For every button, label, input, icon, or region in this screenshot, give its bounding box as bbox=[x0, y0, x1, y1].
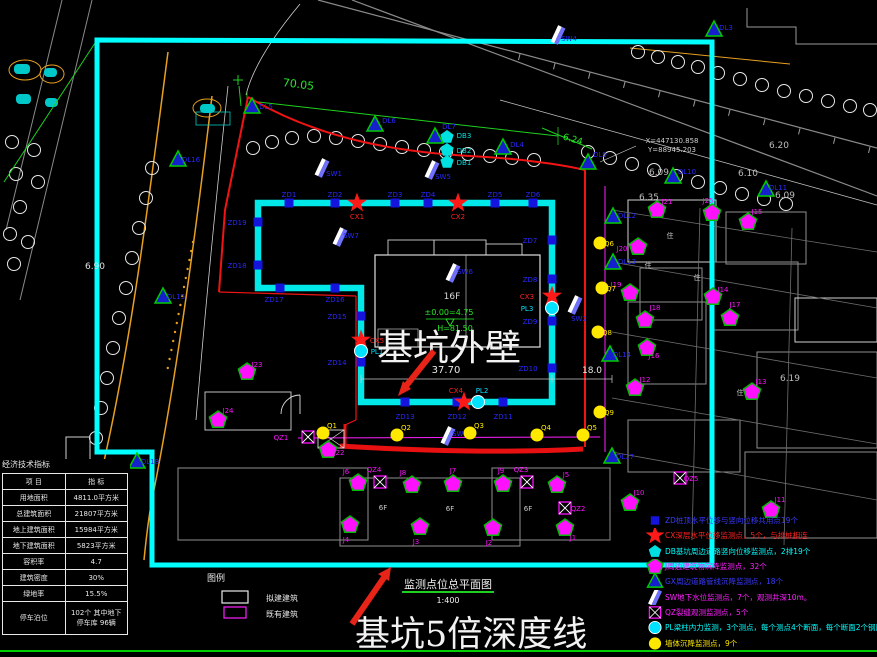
marker-label: ZD14 bbox=[327, 359, 347, 367]
text-6.24: 6.24 bbox=[562, 133, 584, 148]
legend-item-label: DB基坑周边道路竖向位移监测点，2排19个 bbox=[665, 546, 810, 557]
hatch-dot bbox=[188, 259, 190, 261]
marker-j12: J12 bbox=[626, 376, 650, 395]
zd-marker-icon bbox=[548, 275, 557, 284]
marker-label: SW1 bbox=[326, 170, 342, 178]
tree-icon bbox=[113, 312, 126, 325]
legend-symbol bbox=[645, 544, 665, 559]
road-tick bbox=[589, 73, 591, 79]
hatch-dot bbox=[176, 322, 178, 324]
marker-dl6: DL6 bbox=[367, 116, 396, 131]
slope-hatch bbox=[167, 241, 195, 369]
pl-legend-icon bbox=[645, 620, 665, 635]
j-marker-icon bbox=[703, 204, 720, 220]
lot-line bbox=[612, 262, 877, 308]
marker-label: Q5 bbox=[587, 424, 597, 432]
marker-label: J8 bbox=[399, 469, 407, 477]
marker-label: J10 bbox=[633, 489, 645, 497]
marker-q8: Q8 bbox=[592, 326, 612, 339]
cx-legend-icon bbox=[645, 528, 665, 543]
tree-icon bbox=[28, 144, 41, 157]
marker-label: ZD8 bbox=[523, 276, 538, 284]
text-6.09: 6.09 bbox=[649, 168, 669, 178]
tree-icon bbox=[286, 132, 299, 145]
sw-legend-icon bbox=[645, 590, 665, 605]
sw-marker-icon bbox=[568, 295, 583, 315]
green-survey-lines bbox=[4, 40, 592, 182]
marker-j23: J23 bbox=[238, 361, 262, 379]
marker-label: DL15 bbox=[167, 293, 185, 301]
marker-label: DL3 bbox=[719, 24, 733, 32]
stats-cell: 地下建筑面积 bbox=[3, 538, 66, 554]
legend-item-sw: SW地下水位监测点，7个，观测井深10m。 bbox=[645, 589, 877, 604]
marker-label: ZD6 bbox=[526, 191, 541, 199]
legend-symbol bbox=[645, 605, 665, 620]
stats-cell: 绿地率 bbox=[3, 586, 66, 602]
marker-zd14: ZD14 bbox=[327, 358, 365, 368]
marker-j9: J9 bbox=[494, 467, 511, 491]
road-tick bbox=[624, 82, 626, 88]
drawing-title-block: 监测点位总平面图 1:400 bbox=[402, 577, 494, 605]
marker-cx1: CX1 bbox=[347, 193, 367, 222]
legend-item-q: 墙体沉降监测点，9个 bbox=[645, 635, 877, 650]
zd-legend-icon bbox=[645, 513, 665, 528]
zd-marker-icon bbox=[254, 218, 263, 227]
tree-icon bbox=[120, 282, 133, 295]
marker-q9: Q9 bbox=[594, 406, 614, 419]
hatch-dot bbox=[167, 367, 169, 369]
pl-marker-icon bbox=[355, 345, 368, 358]
text-6.90: 6.90 bbox=[85, 262, 105, 272]
road-tick bbox=[869, 147, 871, 153]
tree-icon bbox=[247, 142, 260, 155]
building-outline bbox=[492, 468, 610, 540]
stats-cell: 5823平方米 bbox=[65, 538, 128, 554]
marker-sw6: SW6 bbox=[446, 263, 474, 283]
drawing-scale: 1:400 bbox=[436, 596, 459, 605]
text-X=447130.858: X=447130.858 bbox=[646, 137, 699, 145]
marker-db3: DB3 bbox=[440, 130, 471, 143]
pl-marker-icon bbox=[649, 622, 661, 634]
marker-j24: J24 bbox=[209, 407, 234, 427]
tree-icon bbox=[756, 79, 769, 92]
marker-pl2: PL2 bbox=[472, 387, 489, 409]
legend-item-label: SW地下水位监测点，7个，观测井深10m。 bbox=[665, 592, 811, 603]
legend-item-qz: QZ裂缝观测监测点，5个 bbox=[645, 605, 877, 620]
pl-marker-icon bbox=[472, 396, 485, 409]
marker-label: J25 bbox=[702, 197, 714, 205]
marker-qz2: QZ2 bbox=[559, 502, 585, 514]
legend-item-label: CX深层水平位移监测点，5个，与排桩相连 bbox=[665, 530, 808, 541]
marker-label: CX2 bbox=[451, 213, 465, 221]
j-marker-icon bbox=[629, 238, 646, 254]
marker-j13: J13 bbox=[743, 378, 766, 399]
stats-row: 地下建筑面积5823平方米 bbox=[3, 538, 128, 554]
hatch-dot bbox=[168, 358, 170, 360]
stats-cell: 容积率 bbox=[3, 554, 66, 570]
stats-cell: 用地面积 bbox=[3, 490, 66, 506]
marker-sw1: SW1 bbox=[315, 158, 342, 178]
text-Y=88945.203: Y=88945.203 bbox=[647, 146, 696, 154]
qz-marker-icon bbox=[559, 502, 571, 514]
legend-symbol bbox=[645, 574, 665, 589]
stats-cell: 15.5% bbox=[65, 586, 128, 602]
marker-label: J23 bbox=[251, 361, 263, 369]
zd-marker-icon bbox=[651, 516, 659, 524]
legend-symbol bbox=[645, 636, 665, 651]
zd-marker-icon bbox=[391, 199, 400, 208]
marker-label: ZD4 bbox=[421, 191, 436, 199]
marker-sw7: SW7 bbox=[333, 227, 359, 247]
tree-icon bbox=[672, 56, 685, 69]
zd-marker-icon bbox=[331, 284, 340, 293]
marker-label: J1 bbox=[569, 534, 577, 542]
text-住: 住 bbox=[737, 388, 744, 397]
marker-label: DL6 bbox=[382, 117, 396, 125]
j-marker-icon bbox=[647, 559, 663, 573]
tree-icon bbox=[107, 342, 120, 355]
j-marker-icon bbox=[444, 475, 461, 491]
tree-icon bbox=[714, 182, 727, 195]
stats-row: 停车泊位102个 其中地下停车库 96辆 bbox=[3, 602, 128, 635]
stats-row: 容积率4.7 bbox=[3, 554, 128, 570]
legend-symbol bbox=[645, 559, 665, 574]
tree-icon bbox=[626, 158, 639, 171]
tree-icon bbox=[652, 51, 665, 64]
j-marker-icon bbox=[636, 311, 653, 327]
marker-dl13: DL13 bbox=[605, 254, 636, 269]
text-18.0: 18.0 bbox=[582, 366, 602, 376]
marker-q4: Q4 bbox=[531, 424, 552, 442]
site-plan-drawing: ZD1ZD2ZD3ZD4ZD5ZD6ZD7ZD8ZD9ZD10ZD11ZD12Z… bbox=[0, 0, 877, 657]
marker-label: Q2 bbox=[401, 424, 411, 432]
marker-label: SW7 bbox=[343, 232, 359, 240]
hatch-dot bbox=[185, 277, 187, 279]
tree-icon bbox=[692, 61, 705, 74]
tree-icon bbox=[396, 141, 409, 154]
zd-marker-icon bbox=[548, 364, 557, 373]
marker-label: ZD1 bbox=[282, 191, 297, 199]
stats-row: 地上建筑面积15984平方米 bbox=[3, 522, 128, 538]
marker-label: J17 bbox=[729, 301, 741, 309]
zd-marker-icon bbox=[357, 358, 366, 367]
marker-qz3: QZ3 bbox=[514, 466, 533, 488]
hatch-dot bbox=[172, 340, 174, 342]
marker-label: ZD3 bbox=[388, 191, 403, 199]
dl-marker-icon bbox=[495, 139, 511, 154]
marker-label: QZ3 bbox=[514, 466, 529, 474]
marker-label: SW2 bbox=[571, 315, 587, 323]
stats-cell: 停车泊位 bbox=[3, 602, 66, 635]
pit-wall-outline bbox=[258, 203, 552, 402]
tree-icon bbox=[822, 95, 835, 108]
road-tick bbox=[694, 101, 696, 107]
marker-label: J7 bbox=[449, 467, 457, 475]
stats-cell: 总建筑面积 bbox=[3, 506, 66, 522]
marker-label: J20 bbox=[616, 245, 628, 253]
legend-symbol bbox=[645, 590, 665, 605]
text-图例: 图例 bbox=[207, 572, 225, 584]
road-tick bbox=[834, 138, 836, 144]
stats-cell: 102个 其中地下停车库 96辆 bbox=[65, 602, 128, 635]
marker-zd10: ZD10 bbox=[518, 364, 556, 374]
text-6.19: 6.19 bbox=[780, 374, 800, 384]
marker-label: J21 bbox=[661, 198, 673, 206]
j-marker-icon bbox=[621, 284, 638, 300]
stats-table: 经济技术指标 项 目指 标用地面积4811.0平方米总建筑面积21807平方米地… bbox=[2, 459, 130, 635]
j-marker-icon bbox=[349, 474, 366, 490]
text-16F: 16F bbox=[444, 292, 461, 302]
j-marker-icon bbox=[484, 519, 501, 535]
marker-dl3: DL3 bbox=[706, 21, 733, 36]
marker-label: J4 bbox=[342, 536, 350, 544]
marker-label: J15 bbox=[751, 208, 763, 216]
marker-label: ZD9 bbox=[523, 318, 538, 326]
marker-qz1: QZ1 bbox=[274, 431, 314, 443]
marker-label: DB2 bbox=[457, 147, 472, 155]
marker-label: DB3 bbox=[457, 132, 472, 140]
marker-qz4: QZ4 bbox=[367, 466, 386, 488]
text-住: 住 bbox=[645, 261, 652, 270]
stats-row: 绿地率15.5% bbox=[3, 586, 128, 602]
hatch-dot bbox=[177, 313, 179, 315]
legend-item-label: J周边建筑物沉降监测点，32个 bbox=[665, 561, 767, 572]
marker-dl16: DL16 bbox=[170, 151, 201, 166]
marker-label: ZD19 bbox=[227, 219, 246, 227]
tree-icon bbox=[133, 222, 146, 235]
marker-label: ZD16 bbox=[325, 296, 345, 304]
marker-label: Q3 bbox=[474, 422, 484, 430]
marker-j2: J2 bbox=[484, 519, 501, 547]
cx-marker-icon bbox=[448, 193, 468, 212]
j-legend-icon bbox=[645, 559, 665, 574]
zd-marker-icon bbox=[499, 398, 508, 407]
legend-item-pl: PL梁柱内力监测，3个测点，每个测点4个断面，每个断面2个钢筋计 bbox=[645, 620, 877, 635]
marker-j6: J6 bbox=[342, 468, 367, 490]
marker-label: SW6 bbox=[457, 268, 473, 276]
marker-q6: Q6 bbox=[594, 237, 615, 250]
legend-item-label: PL梁柱内力监测，3个测点，每个测点4个断面，每个断面2个钢筋计 bbox=[665, 622, 877, 633]
legend-item-zd: ZD桩顶水平位移与竖向位移共用点19个 bbox=[645, 513, 877, 528]
zd-marker-icon bbox=[401, 398, 410, 407]
marker-qz5: QZ5 bbox=[674, 472, 698, 484]
legend: ZD桩顶水平位移与竖向位移共用点19个CX深层水平位移监测点，5个，与排桩相连D… bbox=[645, 513, 877, 651]
marker-label: ZD2 bbox=[328, 191, 343, 199]
road-tick bbox=[519, 54, 521, 60]
tree-icon bbox=[140, 192, 153, 205]
marker-label: DL12 bbox=[618, 212, 636, 220]
text-6F: 6F bbox=[446, 505, 454, 513]
marker-label: J22 bbox=[333, 449, 345, 457]
existing-buildings bbox=[66, 200, 877, 546]
marker-label: DL10 bbox=[678, 168, 696, 176]
tree-icon bbox=[864, 104, 877, 117]
marker-label: J24 bbox=[222, 407, 235, 415]
marker-zd15: ZD15 bbox=[327, 312, 365, 322]
stats-row: 总建筑面积21807平方米 bbox=[3, 506, 128, 522]
lot-line bbox=[612, 398, 877, 444]
sw-marker-icon bbox=[648, 590, 662, 605]
marker-label: DL18 bbox=[141, 458, 159, 466]
zd-marker-icon bbox=[285, 199, 294, 208]
legend-symbol bbox=[645, 513, 665, 528]
marker-label: Q7 bbox=[606, 285, 616, 293]
text-住: 住 bbox=[667, 231, 674, 240]
marker-zd7: ZD7 bbox=[523, 236, 557, 246]
cx-marker-icon bbox=[347, 193, 367, 212]
marker-label: DL14 bbox=[613, 351, 632, 359]
marker-label: Q1 bbox=[327, 422, 337, 430]
stats-row: 用地面积4811.0平方米 bbox=[3, 490, 128, 506]
marker-label: J11 bbox=[774, 496, 786, 504]
legend-symbol bbox=[645, 620, 665, 635]
j-marker-icon bbox=[721, 309, 738, 325]
marker-cx2: CX2 bbox=[448, 193, 468, 222]
legend-item-cx: CX深层水平位移监测点，5个，与排桩相连 bbox=[645, 528, 877, 543]
marker-label: J12 bbox=[639, 376, 651, 384]
db-marker-icon bbox=[440, 143, 453, 156]
road-tick bbox=[554, 63, 556, 69]
text-6.09: 6.09 bbox=[775, 191, 795, 201]
marker-dl18: DL18 bbox=[129, 453, 159, 468]
marker-label: ZD5 bbox=[488, 191, 503, 199]
marker-zd19: ZD19 bbox=[227, 218, 262, 228]
zd-marker-icon bbox=[529, 199, 538, 208]
marker-label: DB1 bbox=[457, 159, 472, 167]
marker-label: SW5 bbox=[435, 173, 451, 181]
hatch-dot bbox=[190, 250, 192, 252]
stats-table-grid: 项 目指 标用地面积4811.0平方米总建筑面积21807平方米地上建筑面积15… bbox=[2, 473, 128, 635]
hatch-dot bbox=[192, 241, 194, 243]
tree-icon bbox=[22, 236, 35, 249]
tree-icon bbox=[32, 176, 45, 189]
building-outline bbox=[726, 212, 806, 264]
marker-label: PL3 bbox=[521, 305, 534, 313]
qz-legend-icon bbox=[645, 605, 665, 620]
legend-item-label: ZD桩顶水平位移与竖向位移共用点19个 bbox=[665, 515, 798, 526]
stats-cell: 21807平方米 bbox=[65, 506, 128, 522]
qz-marker-icon bbox=[302, 431, 314, 443]
stats-cell: 15984平方米 bbox=[65, 522, 128, 538]
legend-item-db: DB基坑周边道路竖向位移监测点，2排19个 bbox=[645, 544, 877, 559]
marker-label: J13 bbox=[755, 378, 767, 386]
tree-icon bbox=[6, 136, 19, 149]
stats-row: 建筑密度30% bbox=[3, 570, 128, 586]
hatch-dot bbox=[183, 286, 185, 288]
marker-label: DL5 bbox=[259, 103, 273, 111]
marker-j10: J10 bbox=[621, 489, 644, 510]
qz-marker-icon bbox=[521, 476, 533, 488]
tree-icon bbox=[8, 258, 21, 271]
hatch-dot bbox=[186, 268, 188, 270]
road-tick bbox=[729, 110, 731, 116]
stats-cell: 地上建筑面积 bbox=[3, 522, 66, 538]
marker-label: DL17 bbox=[616, 453, 634, 461]
zd-marker-icon bbox=[548, 317, 557, 326]
tree-icon bbox=[101, 372, 114, 385]
tree-icon bbox=[632, 46, 645, 59]
stats-cell: 30% bbox=[65, 570, 128, 586]
zd-marker-icon bbox=[331, 199, 340, 208]
text-70.05: 70.05 bbox=[282, 76, 315, 93]
marker-label: PL2 bbox=[476, 387, 489, 395]
text-6.35: 6.35 bbox=[639, 193, 659, 203]
marker-label: J18 bbox=[649, 304, 661, 312]
marker-label: J14 bbox=[717, 286, 730, 294]
zd-marker-icon bbox=[357, 312, 366, 321]
marker-label: Q4 bbox=[541, 424, 552, 432]
qz-marker-icon bbox=[374, 476, 386, 488]
legend-symbol bbox=[645, 528, 665, 543]
legend-item-label: QZ裂缝观测监测点，5个 bbox=[665, 607, 748, 618]
marker-label: DL16 bbox=[182, 156, 201, 164]
annotation-pit-wall: 基坑外壁 bbox=[377, 328, 521, 396]
marker-label: CX4 bbox=[449, 387, 464, 395]
tree-icon bbox=[692, 176, 705, 189]
marker-cx3: CX3 bbox=[520, 286, 562, 305]
db-marker-icon bbox=[649, 545, 662, 557]
hatch-dot bbox=[179, 304, 181, 306]
tree-icon bbox=[4, 228, 17, 241]
tree-icon bbox=[736, 188, 749, 201]
zd-marker-icon bbox=[254, 261, 263, 270]
zd-marker-icon bbox=[276, 284, 285, 293]
north-road bbox=[318, 0, 877, 205]
legend-item-dl: GX周边道路管线沉降监测点，18个 bbox=[645, 574, 877, 589]
zd-marker-icon bbox=[424, 199, 433, 208]
j-marker-icon bbox=[411, 518, 428, 534]
marker-dl15: DL15 bbox=[155, 288, 185, 303]
marker-label: ZD11 bbox=[493, 413, 512, 421]
stats-cell: 建筑密度 bbox=[3, 570, 66, 586]
marker-q2: Q2 bbox=[391, 424, 411, 442]
text-6F: 6F bbox=[379, 504, 387, 512]
db-legend-icon bbox=[645, 544, 665, 559]
marker-label: J2 bbox=[485, 539, 493, 547]
legend-box-symbols bbox=[222, 591, 248, 618]
marker-dl12: DL12 bbox=[605, 208, 636, 223]
marker-label: CX1 bbox=[350, 213, 364, 221]
j-marker-icon bbox=[341, 516, 358, 532]
legend-item-label: GX周边道路管线沉降监测点，18个 bbox=[665, 576, 783, 587]
marker-label: DL7 bbox=[442, 123, 456, 131]
tree-icon bbox=[308, 130, 321, 143]
marker-label: ZD10 bbox=[518, 365, 537, 373]
legend-item-j: J周边建筑物沉降监测点，32个 bbox=[645, 559, 877, 574]
marker-dl9: DL9 bbox=[580, 151, 607, 169]
marker-q5: Q5 bbox=[577, 424, 597, 442]
road-tick bbox=[659, 91, 661, 97]
zd-marker-icon bbox=[491, 199, 500, 208]
j-marker-icon bbox=[556, 519, 573, 535]
marker-j5: J5 bbox=[548, 471, 569, 492]
tree-icon bbox=[10, 168, 23, 181]
road-tick bbox=[764, 119, 766, 125]
marker-label: J5 bbox=[562, 471, 570, 479]
marker-label: ZD17 bbox=[264, 296, 283, 304]
text-既有建筑: 既有建筑 bbox=[266, 609, 298, 619]
j-marker-icon bbox=[494, 475, 511, 491]
dl-marker-icon bbox=[648, 574, 663, 587]
marker-label: J16 bbox=[648, 352, 661, 360]
text-6F: 6F bbox=[524, 505, 532, 513]
marker-j8: J8 bbox=[399, 469, 421, 492]
pit-wall-label: 基坑外壁 bbox=[377, 328, 521, 369]
stats-cell: 4811.0平方米 bbox=[65, 490, 128, 506]
dl-marker-icon bbox=[367, 116, 383, 131]
legend-item-label: 墙体沉降监测点，9个 bbox=[665, 638, 737, 649]
marker-label: QZ5 bbox=[684, 475, 699, 483]
